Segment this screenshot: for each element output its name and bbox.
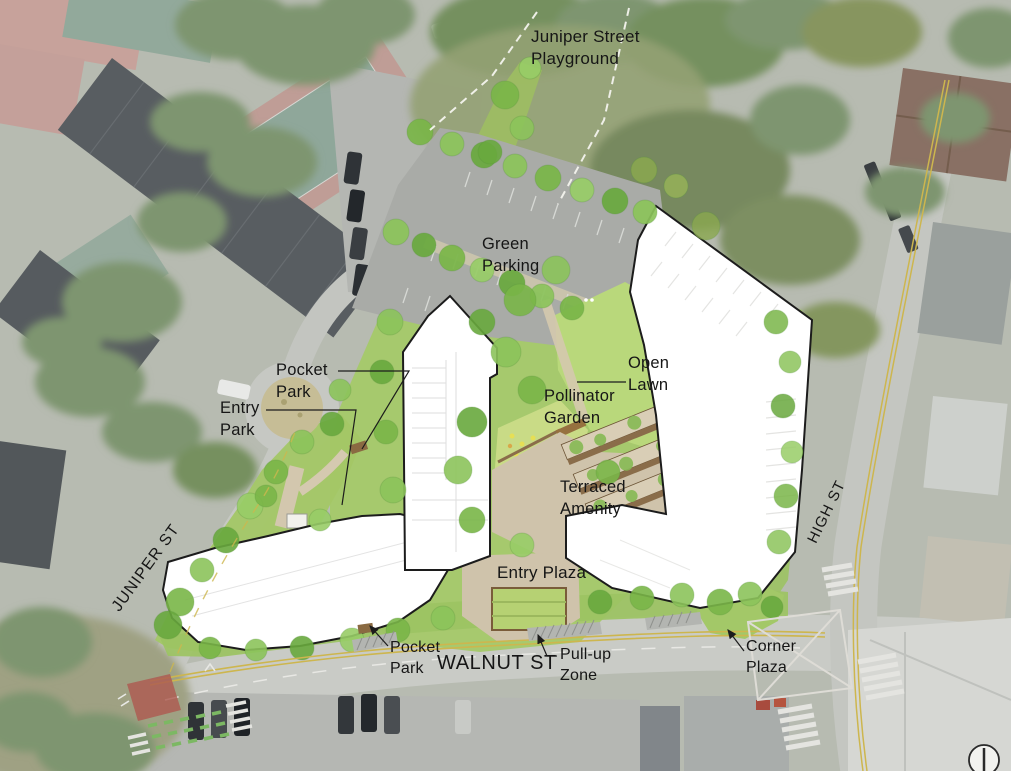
label-pocket-park-upper: Pocket Park [276, 360, 328, 404]
label-pull-up-zone: Pull-up Zone [560, 644, 611, 686]
label-green-parking: Green Parking [482, 234, 539, 278]
label-pollinator-garden: Pollinator Garden [544, 386, 615, 430]
north-arrow-icon [969, 745, 999, 771]
label-walnut-st: WALNUT ST [437, 650, 557, 676]
label-corner-plaza: Corner Plaza [746, 636, 796, 678]
label-terraced-amenity: Terraced Amenity [560, 477, 626, 521]
label-open-lawn: Open Lawn [628, 353, 669, 397]
label-pocket-park-lower: Pocket Park [390, 637, 440, 679]
label-juniper-street-playground: Juniper Street Playground [531, 26, 640, 71]
label-entry-park: Entry Park [220, 398, 260, 442]
label-entry-plaza: Entry Plaza [497, 562, 586, 584]
site-plan-canvas: Juniper Street Playground Green Parking … [0, 0, 1011, 771]
